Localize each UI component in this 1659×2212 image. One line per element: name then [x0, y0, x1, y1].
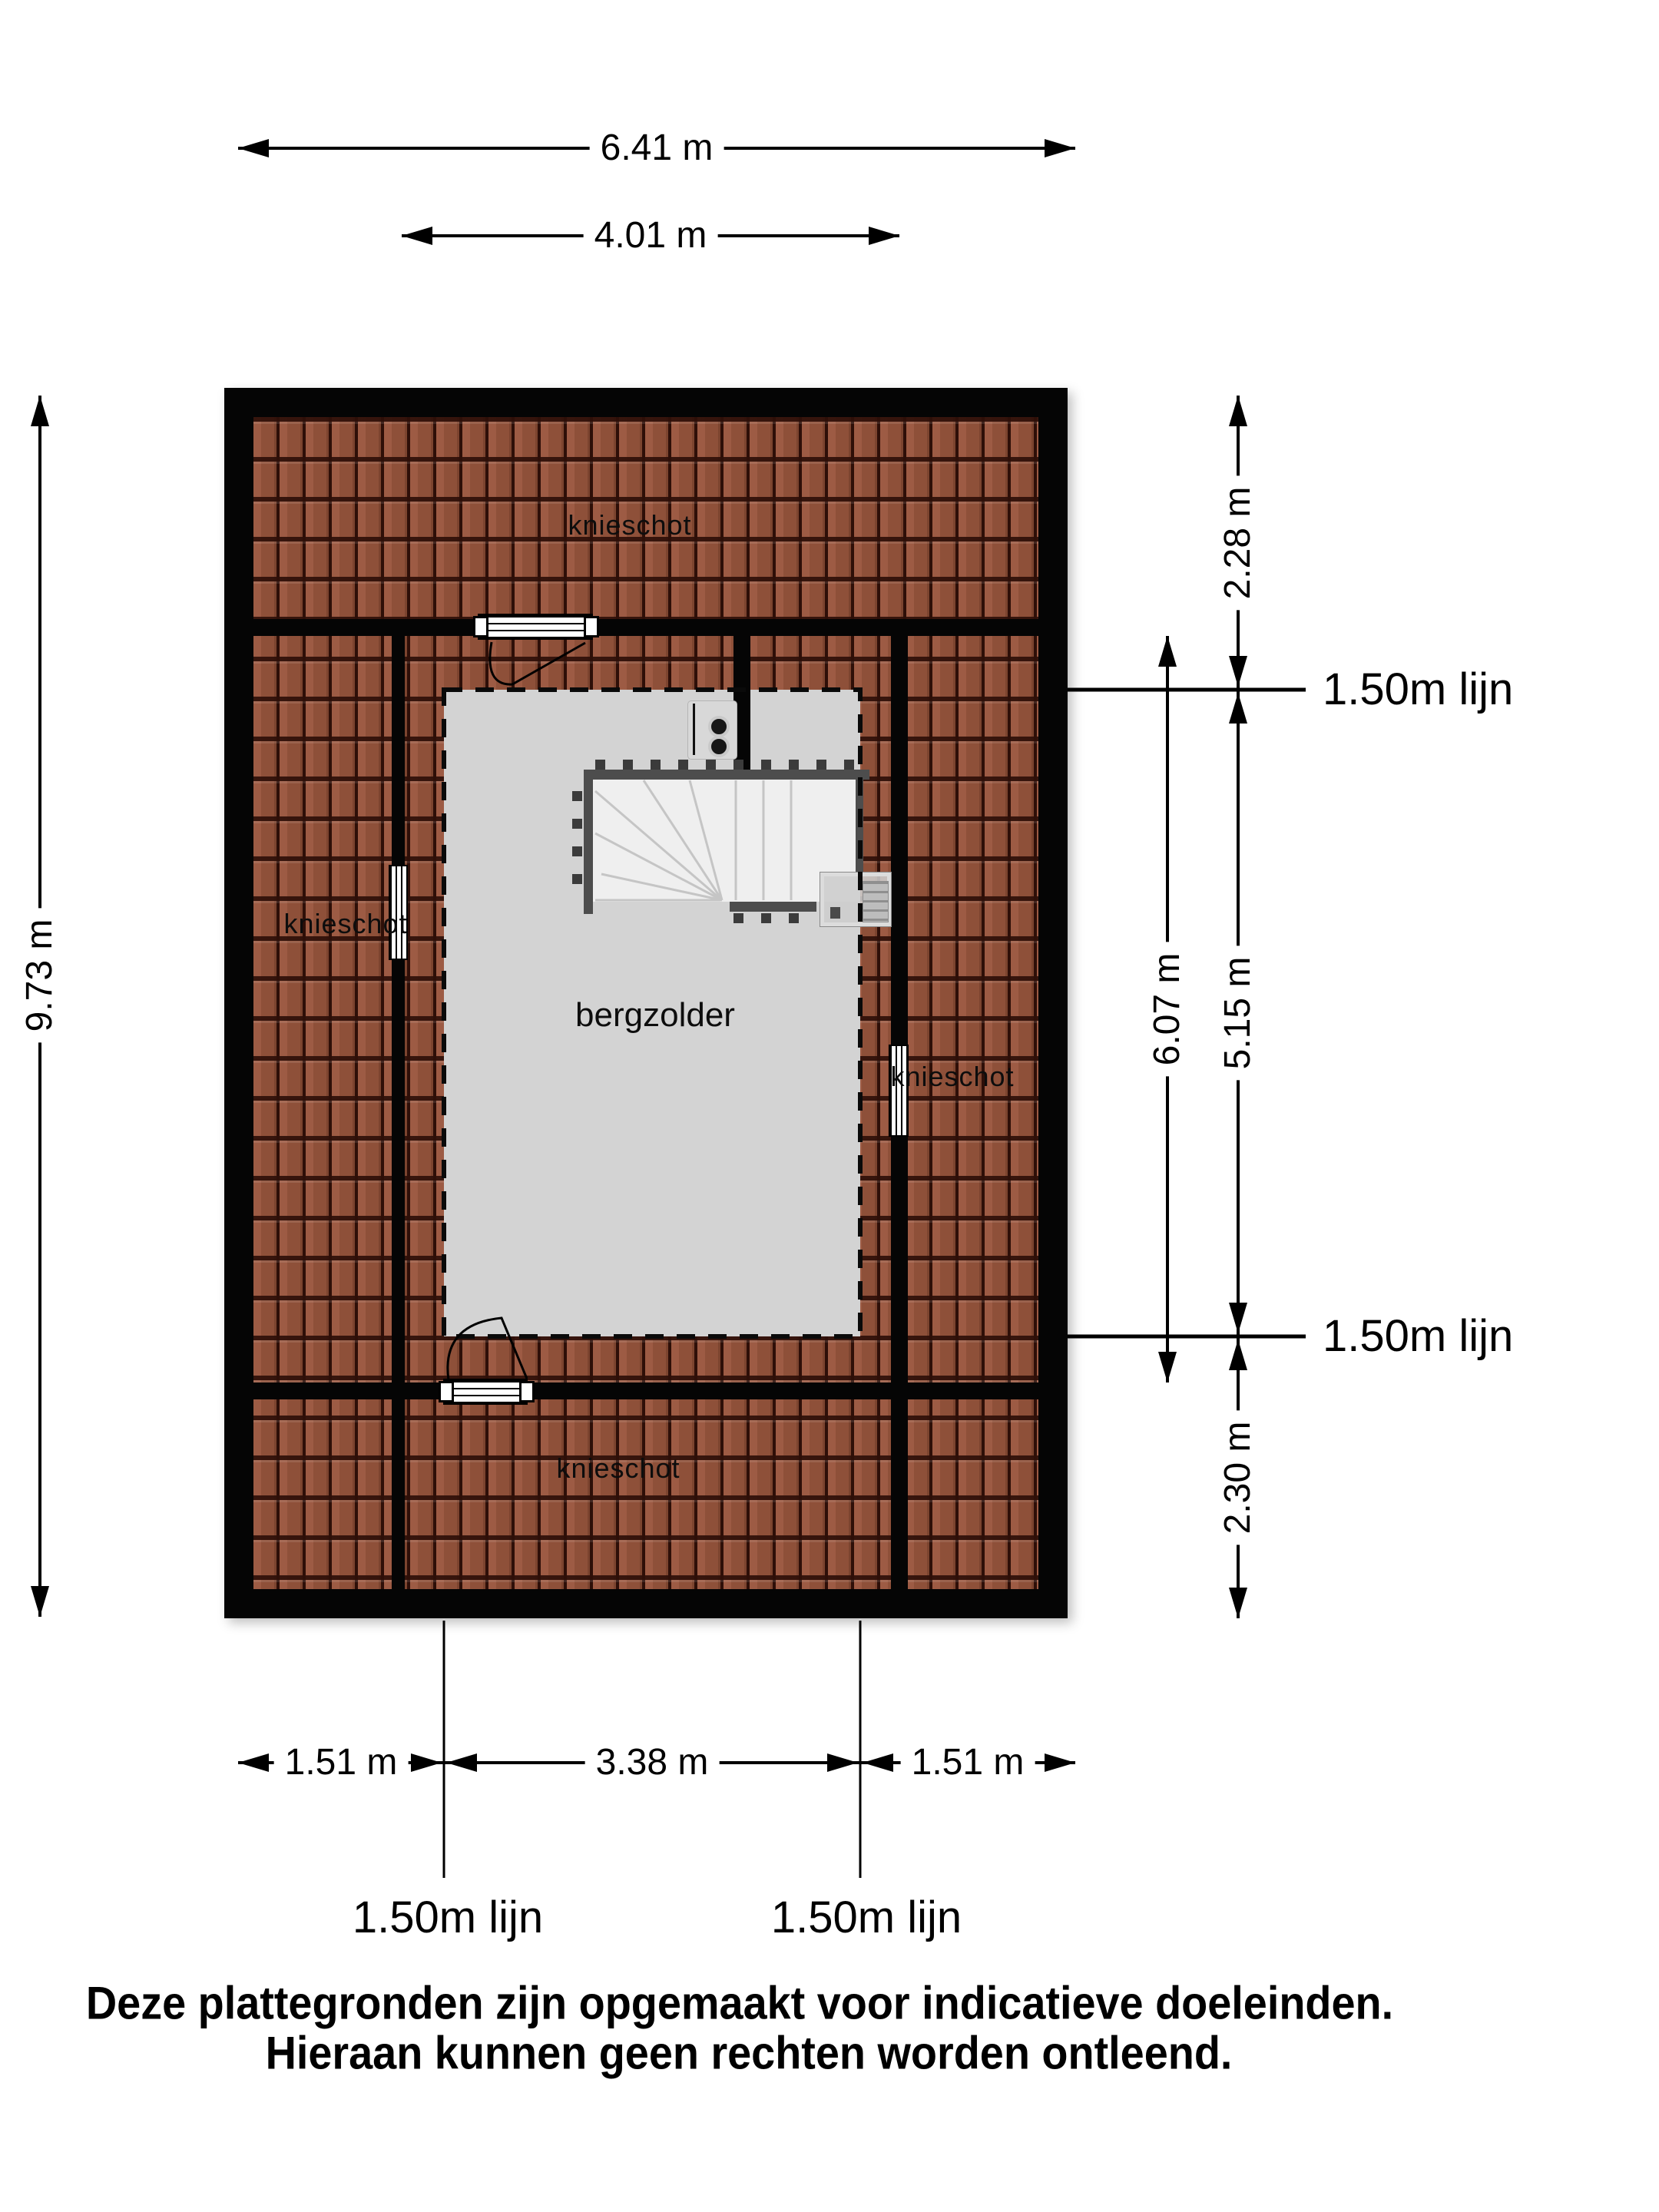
dim-bottom-right: 1.51 m: [901, 1741, 1035, 1784]
dim-bottom-left: 1.51 m: [274, 1741, 409, 1784]
dimension-arrowheads: [31, 139, 1247, 1772]
room-label-knieschot-left: knieschot: [283, 908, 407, 940]
room-label-knieschot-right: knieschot: [890, 1061, 1014, 1093]
floor-plan-page: 6.41 m 4.01 m 9.73 m 2.28 m 6.07 m 5.15 …: [0, 0, 1659, 2212]
dim-right-middle: 5.15 m: [1217, 946, 1260, 1081]
height-line-label-bottom-left: 1.50m lijn: [353, 1896, 543, 1940]
dim-left: 9.73 m: [18, 909, 61, 1043]
dim-right-top: 2.28 m: [1217, 476, 1260, 611]
dim-right-inner: 6.07 m: [1146, 942, 1189, 1077]
height-line-label-bottom-right: 1.50m lijn: [771, 1896, 962, 1940]
footer-disclaimer-line2: Hieraan kunnen geen rechten worden ontle…: [266, 2027, 1233, 2080]
dim-bottom-middle: 3.38 m: [585, 1741, 720, 1784]
room-label-bergzolder: bergzolder: [575, 996, 735, 1035]
room-label-knieschot-bottom: knieschot: [556, 1452, 680, 1485]
window-swing-lines: [448, 642, 585, 1380]
height-line-label-right-top: 1.50m lijn: [1323, 667, 1513, 712]
room-label-knieschot-top: knieschot: [568, 509, 691, 541]
dimension-linework: [0, 0, 1659, 2212]
dim-right-bottom: 2.30 m: [1217, 1411, 1260, 1545]
dim-top-outer: 6.41 m: [590, 127, 724, 170]
height-line-label-right-bottom: 1.50m lijn: [1323, 1314, 1513, 1359]
dim-top-inner: 4.01 m: [584, 214, 718, 257]
footer-disclaimer-line1: Deze plattegronden zijn opgemaakt voor i…: [86, 1977, 1393, 2030]
stair-treads: [595, 780, 791, 900]
